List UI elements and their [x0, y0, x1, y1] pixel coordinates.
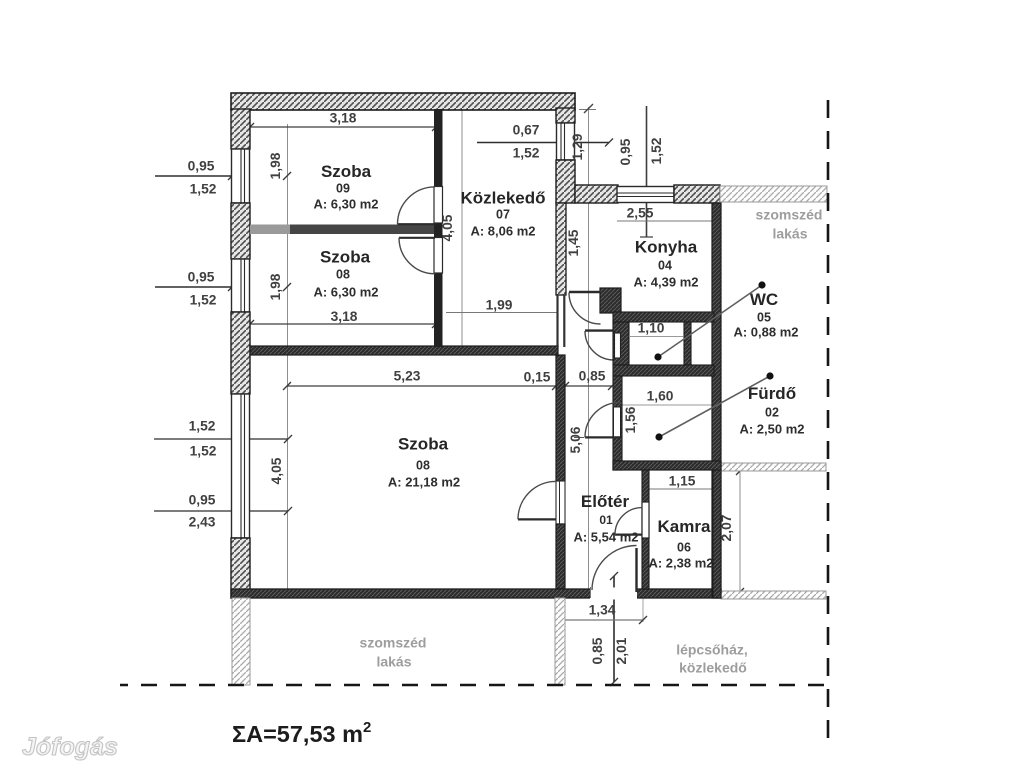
svg-text:Jófogás: Jófogás: [22, 733, 118, 761]
svg-text:A: 6,30 m2: A: 6,30 m2: [313, 285, 378, 300]
svg-text:lakás: lakás: [772, 226, 807, 242]
svg-text:1,29: 1,29: [570, 133, 585, 160]
svg-text:Fürdő: Fürdő: [748, 384, 796, 403]
svg-text:ΣA=57,53 m2: ΣA=57,53 m2: [232, 719, 371, 747]
svg-text:1,52: 1,52: [190, 444, 217, 459]
svg-text:1,10: 1,10: [638, 321, 665, 336]
svg-text:közlekedő: közlekedő: [679, 660, 747, 676]
svg-text:3,18: 3,18: [331, 309, 358, 324]
svg-text:lépcsőház,: lépcsőház,: [676, 642, 748, 658]
svg-text:06: 06: [677, 541, 691, 555]
svg-text:08: 08: [336, 268, 350, 282]
svg-text:szomszéd: szomszéd: [756, 207, 823, 223]
svg-text:0,67: 0,67: [513, 123, 540, 138]
svg-text:0,85: 0,85: [579, 369, 606, 384]
svg-text:0,95: 0,95: [188, 159, 215, 174]
svg-text:3,18: 3,18: [330, 111, 357, 126]
svg-text:Konyha: Konyha: [635, 238, 698, 257]
svg-text:1,98: 1,98: [268, 273, 283, 300]
svg-text:1,52: 1,52: [649, 137, 664, 164]
svg-text:4,05: 4,05: [440, 214, 455, 241]
svg-text:szomszéd: szomszéd: [360, 635, 427, 651]
svg-text:1,56: 1,56: [623, 406, 638, 433]
svg-text:04: 04: [658, 259, 672, 273]
svg-text:07: 07: [496, 208, 510, 222]
svg-text:Közlekedő: Közlekedő: [460, 189, 545, 208]
svg-text:1,60: 1,60: [647, 389, 674, 404]
svg-text:Szoba: Szoba: [321, 162, 372, 181]
svg-text:1,52: 1,52: [190, 293, 217, 308]
svg-text:A: 21,18 m2: A: 21,18 m2: [388, 475, 460, 490]
svg-text:2,01: 2,01: [614, 637, 629, 664]
svg-text:Szoba: Szoba: [398, 435, 449, 454]
svg-text:2,43: 2,43: [189, 515, 216, 530]
svg-text:05: 05: [757, 311, 771, 325]
svg-text:0,95: 0,95: [188, 270, 215, 285]
svg-text:0,95: 0,95: [618, 138, 633, 165]
svg-text:1,52: 1,52: [190, 182, 217, 197]
svg-text:5,06: 5,06: [568, 426, 583, 453]
svg-text:02: 02: [765, 406, 779, 420]
svg-text:1,15: 1,15: [669, 474, 696, 489]
svg-text:A: 2,38 m2: A: 2,38 m2: [648, 556, 713, 571]
svg-text:A: 4,39 m2: A: 4,39 m2: [633, 275, 698, 290]
svg-text:1,98: 1,98: [268, 152, 283, 179]
svg-text:1,52: 1,52: [513, 146, 540, 161]
svg-text:WC: WC: [750, 290, 778, 309]
svg-text:1,52: 1,52: [189, 419, 216, 434]
svg-text:1,99: 1,99: [486, 298, 513, 313]
svg-text:2,55: 2,55: [627, 206, 654, 221]
svg-text:A: 0,88 m2: A: 0,88 m2: [733, 325, 798, 340]
svg-text:1,34: 1,34: [589, 603, 616, 618]
svg-text:Szoba: Szoba: [320, 248, 371, 267]
svg-text:2,07: 2,07: [719, 514, 734, 541]
svg-text:A: 8,06 m2: A: 8,06 m2: [470, 224, 535, 239]
svg-text:Kamra: Kamra: [658, 517, 711, 536]
svg-text:0,15: 0,15: [524, 370, 551, 385]
svg-text:0,95: 0,95: [189, 493, 216, 508]
svg-text:09: 09: [336, 182, 350, 196]
svg-text:A: 6,30 m2: A: 6,30 m2: [313, 197, 378, 212]
svg-text:Előtér: Előtér: [581, 492, 630, 511]
svg-text:1,45: 1,45: [566, 229, 581, 256]
svg-text:5,23: 5,23: [394, 369, 421, 384]
svg-text:08: 08: [416, 459, 430, 473]
svg-text:A: 5,54 m2: A: 5,54 m2: [573, 530, 638, 545]
svg-text:A: 2,50 m2: A: 2,50 m2: [739, 422, 804, 437]
svg-text:0,85: 0,85: [590, 637, 605, 664]
svg-text:4,05: 4,05: [269, 457, 284, 484]
svg-text:lakás: lakás: [376, 654, 411, 670]
svg-text:01: 01: [599, 513, 613, 527]
